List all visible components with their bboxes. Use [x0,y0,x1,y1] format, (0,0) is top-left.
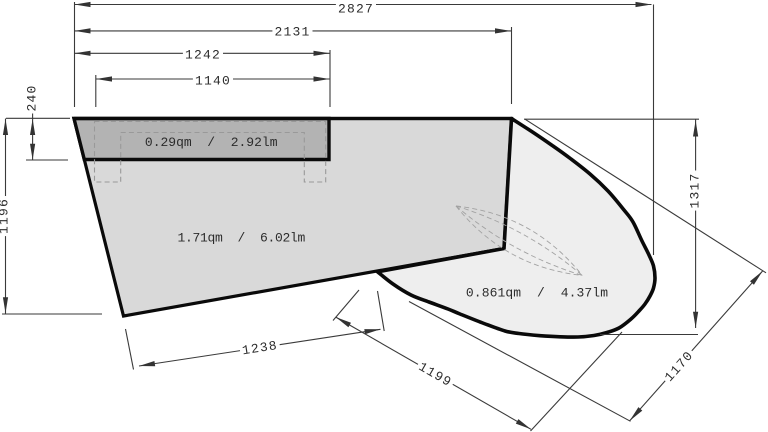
svg-text:1317: 1317 [688,172,703,208]
svg-text:240: 240 [25,84,40,111]
svg-text:2827: 2827 [338,2,374,17]
svg-text:1140: 1140 [195,74,231,89]
svg-text:1196: 1196 [0,198,12,234]
svg-text:0.861qm / 4.37lm: 0.861qm / 4.37lm [466,286,608,301]
svg-text:2131: 2131 [274,25,310,40]
svg-text:1242: 1242 [185,48,221,63]
svg-text:0.29qm / 2.92lm: 0.29qm / 2.92lm [145,135,278,150]
svg-text:1.71qm / 6.02lm: 1.71qm / 6.02lm [178,231,306,246]
